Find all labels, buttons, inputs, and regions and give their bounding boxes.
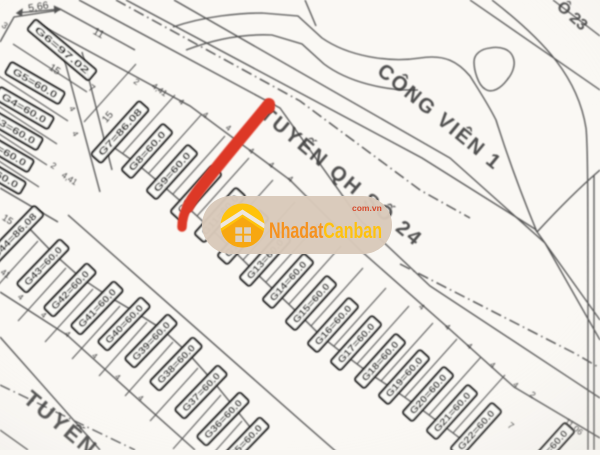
svg-text:NhadatCanban: NhadatCanban	[269, 218, 382, 243]
svg-text:com.vn: com.vn	[352, 203, 382, 213]
